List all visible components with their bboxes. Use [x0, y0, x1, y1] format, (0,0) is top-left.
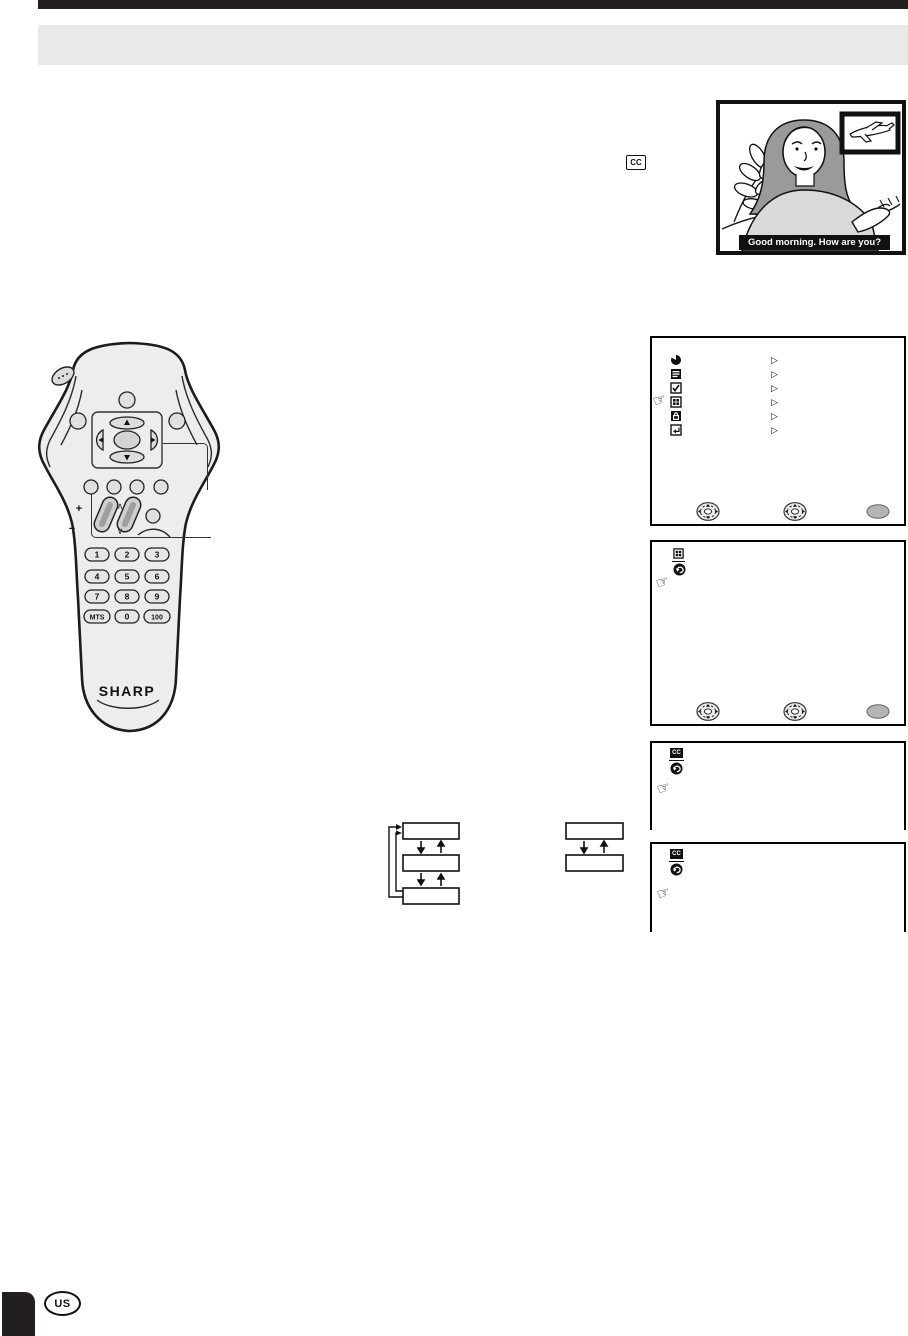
flow-left-box-3: [403, 888, 459, 904]
return-icon: [673, 563, 685, 575]
function-button-3: [130, 480, 144, 494]
volume-minus-label: −: [69, 523, 75, 535]
osd-caption-screen-1: CC ☞: [650, 741, 906, 830]
closed-caption-icon: CC: [626, 155, 646, 170]
dpad-icon: [783, 702, 807, 721]
selected-tab-underline: [669, 861, 684, 863]
flow-right-box-1: [566, 823, 623, 839]
menu-button-callout-line: [91, 494, 211, 538]
enter-oval-icon: [866, 704, 890, 719]
key-2: 2: [125, 550, 130, 560]
osd-feature-menu-screen: ☞: [650, 540, 906, 726]
flow-right-box-2: [566, 855, 623, 871]
hand-pointer-icon: ☞: [651, 391, 668, 409]
key-3: 3: [155, 550, 160, 560]
hand-pointer-icon: ☞: [655, 884, 672, 902]
left-round-button: [70, 413, 86, 429]
volume-plus-label: +: [76, 503, 82, 515]
selected-tab-underline: [669, 760, 684, 762]
return-icon: [670, 863, 682, 875]
osd-main-menu-screen: ▷ ▷ ▷ ▷ ▷ ▷ ☞: [650, 336, 906, 526]
mode-cycle-diagram: [383, 817, 628, 912]
closed-caption-icon: CC: [670, 748, 683, 758]
key-5: 5: [125, 572, 130, 582]
dpad-icon: [696, 502, 720, 521]
enter-button: [114, 431, 140, 449]
feature-icon: [673, 548, 685, 560]
menu-button: [84, 480, 98, 494]
picture-icon: [670, 354, 682, 366]
key-4: 4: [95, 572, 100, 582]
setup-icon: [670, 382, 682, 394]
function-button-2: [107, 480, 121, 494]
remote-control-illustration: + − ∧ ∨ 1 2 3 4 5 6: [35, 338, 225, 738]
return-icon: [670, 762, 682, 774]
section-title-bar: [38, 25, 908, 65]
hand-pointer-icon: ☞: [654, 573, 671, 591]
caption-demo-illustration: Good morning. How are you?: [716, 100, 906, 255]
caption-text-bar: Good morning. How are you?: [739, 235, 890, 250]
enter-oval-icon: [866, 504, 890, 519]
top-rule-bar: [38, 0, 908, 9]
audio-icon: [670, 368, 682, 380]
osd-caption-screen-2: CC ☞: [650, 842, 906, 932]
key-7: 7: [95, 592, 100, 602]
key-0: 0: [125, 612, 130, 622]
flow-left-box-1: [403, 823, 459, 839]
tv-scene-drawing: [720, 104, 902, 251]
key-9: 9: [155, 592, 160, 602]
key-100: 100: [151, 615, 163, 622]
menu-cursor-triangle: ▷: [771, 356, 778, 365]
key-mts: MTS: [90, 615, 105, 622]
key-1: 1: [95, 550, 100, 560]
right-round-button: [169, 413, 185, 429]
pip-inset: [842, 114, 898, 152]
key-6: 6: [155, 572, 160, 582]
feature-icon: [670, 396, 682, 408]
key-8: 8: [125, 592, 130, 602]
hand-pointer-icon: ☞: [655, 779, 672, 797]
dpad-callout-line: [163, 443, 208, 490]
page-number-tab: [2, 1292, 35, 1336]
closed-caption-icon: CC: [670, 849, 683, 859]
dpad-icon: [696, 702, 720, 721]
flow-left-box-2: [403, 855, 459, 871]
exit-icon: [670, 424, 682, 436]
region-badge: US: [44, 1291, 81, 1316]
selected-tab-underline: [672, 561, 685, 563]
dpad-icon: [783, 502, 807, 521]
top-round-button: [119, 392, 135, 408]
manual-page: CC: [0, 0, 908, 1336]
brand-logo: SHARP: [99, 683, 156, 699]
parental-lock-icon: [670, 410, 682, 422]
